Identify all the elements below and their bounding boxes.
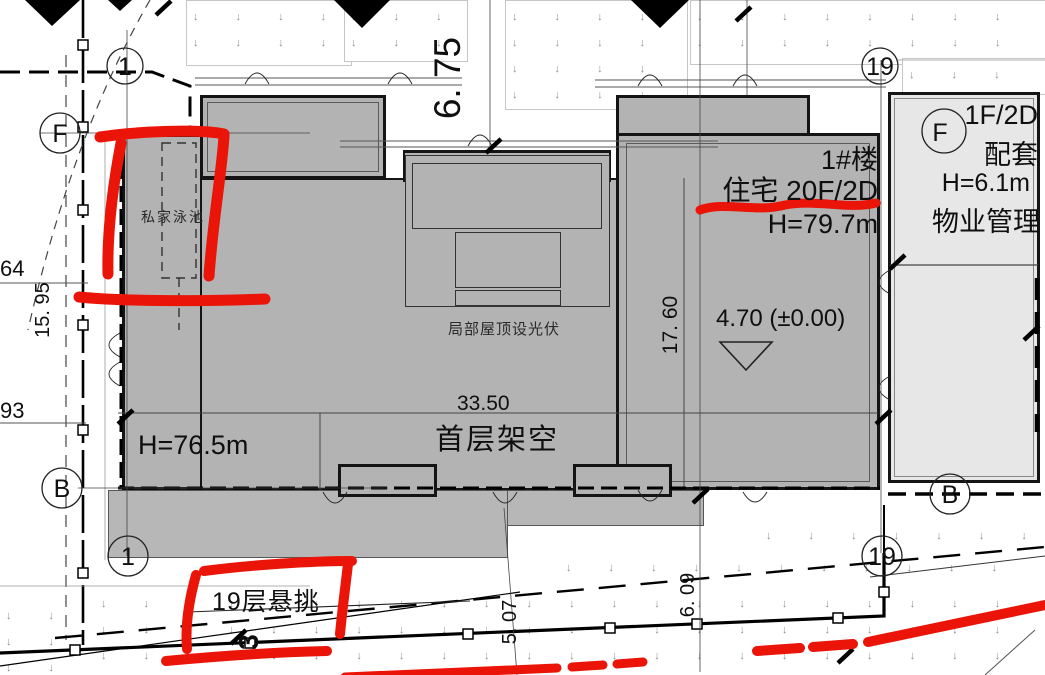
red-cantilever-top-stroke	[204, 561, 352, 571]
dim-left-setback: 15. 95	[32, 270, 56, 350]
stilt-floor-label: 首层架空	[435, 416, 559, 458]
dim-bottom-left-setback: 5. 07	[499, 589, 521, 655]
red-boundary-dashes-right	[757, 644, 853, 651]
elevation-value: 4.70 (±0.00)	[716, 305, 845, 333]
dim-tower-depth: 17. 60	[659, 280, 685, 370]
pv-roof-note: 局部屋顶设光伏	[448, 318, 560, 339]
left-tower-height: H=76.5m	[138, 430, 248, 461]
coord-lower: 93	[0, 398, 24, 424]
site-plan: ↓ ↓ ↓ ↓ ↓ ↓ ↓ ↓ ↓ ↓ ↓ ↓ ↓ ↓ ↓ ↓ ↓ ↓ ↓ ↓ …	[0, 0, 1045, 675]
red-cantilever-right-stroke	[340, 564, 348, 634]
axis-label-col1-top: 1	[118, 53, 132, 81]
axis-label-col1-bottom: 1	[121, 543, 135, 571]
axis-label-rowf-left: F	[52, 120, 67, 148]
red-pool-left-stroke	[108, 143, 121, 274]
private-pool-label: 私家泳池	[141, 207, 205, 227]
red-boundary-solid-right	[868, 605, 1045, 642]
cantilever-note: 19层悬挑	[212, 582, 320, 618]
stilt-dimension: 33.50	[457, 392, 510, 416]
axis-label-rowb-right: B	[942, 481, 959, 509]
red-pool-bottom-stroke	[79, 297, 265, 301]
coord-upper: 64	[0, 256, 24, 282]
elevation-marker-triangle	[720, 342, 772, 370]
axis-label-rowb-left: B	[54, 475, 71, 503]
service-floors: 1F/2D	[920, 100, 1038, 131]
north-pointer-triangles	[25, 0, 689, 28]
axis-label-col19-top: 19	[866, 53, 894, 81]
dim-top-setback: 6. 75	[427, 18, 467, 138]
residence-spec: 住宅 20F/2D	[692, 169, 878, 209]
dim-bottom-right-setback: 6. 09	[677, 562, 699, 628]
residence-height: H=79.7m	[722, 209, 878, 240]
service-height: H=6.1m	[900, 169, 1030, 198]
service-management: 物业管理	[882, 200, 1040, 239]
red-pool-top-stroke	[100, 131, 224, 137]
service-type: 配套	[920, 133, 1038, 172]
red-pool-right-stroke	[209, 136, 224, 276]
axis-label-col19-bottom: 19	[868, 543, 896, 571]
dim-road-width: 3	[233, 622, 267, 662]
red-boundary-dashes-mid	[572, 662, 643, 667]
red-boundary-solid-left	[345, 668, 557, 675]
